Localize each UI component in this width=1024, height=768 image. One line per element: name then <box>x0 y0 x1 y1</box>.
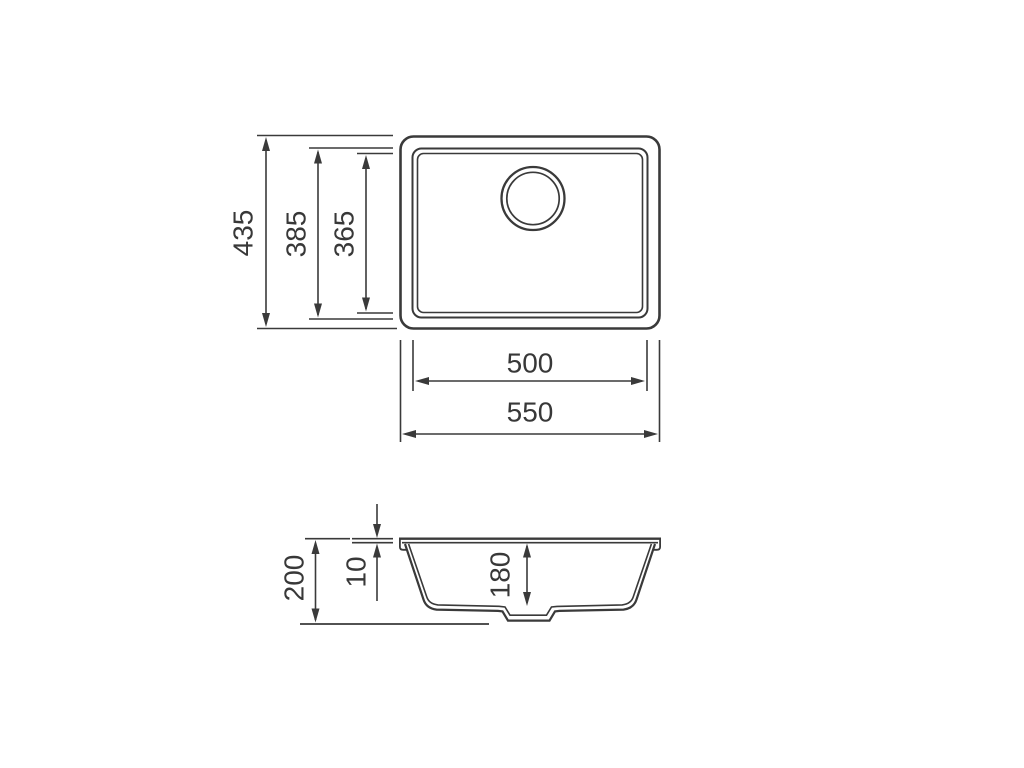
dim-bowl-depth: 180 <box>485 544 532 607</box>
sink-drawing-svg: 435 385 365 500 <box>0 0 1024 768</box>
sink-outer-rect <box>401 137 660 329</box>
dim-overall-width-label: 550 <box>507 397 554 428</box>
sink-inner-rect-inner-line <box>418 154 643 313</box>
dim-bowl-width-label: 500 <box>507 348 554 379</box>
dim-rim-thickness: 10 <box>341 504 394 601</box>
drain-circle-inner <box>507 172 559 224</box>
dim-overall-depth: 200 <box>279 539 351 623</box>
sink-inner-rect-outer-line <box>413 149 648 318</box>
dim-bowl-depth-label: 180 <box>485 552 516 599</box>
dim-overall-depth-label: 200 <box>279 555 310 602</box>
dim-inner-height-label: 365 <box>329 211 360 258</box>
dim-overall-height-label: 435 <box>228 210 259 257</box>
top-view: 435 385 365 500 <box>228 136 660 443</box>
dim-overall-height: 435 <box>228 136 398 329</box>
section-view: 200 10 180 <box>279 504 662 624</box>
drain-circle-outer <box>502 167 565 230</box>
dim-bowl-width: 500 <box>413 340 647 391</box>
dim-inner-height: 365 <box>329 154 394 314</box>
dim-bowl-height-label: 385 <box>281 211 312 258</box>
dim-rim-thickness-label: 10 <box>341 556 372 587</box>
drawing-canvas: 435 385 365 500 <box>0 0 1024 768</box>
